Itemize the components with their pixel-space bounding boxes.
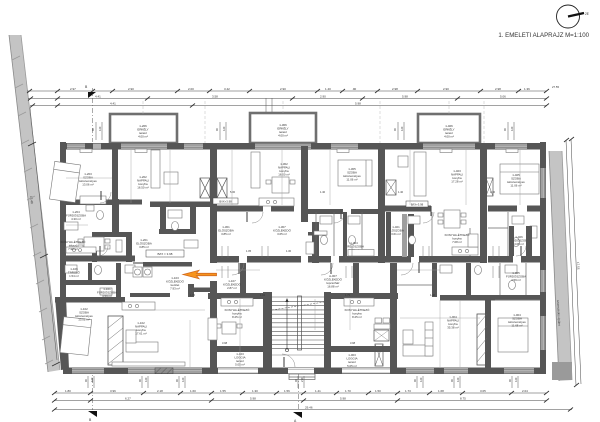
- svg-text:1.80: 1.80: [65, 389, 71, 393]
- svg-text:7.90 m²: 7.90 m²: [68, 247, 78, 251]
- svg-text:5.06: 5.06: [500, 95, 506, 99]
- svg-text:5.98: 5.98: [355, 102, 361, 106]
- svg-text:7.93 m²: 7.93 m²: [170, 287, 180, 291]
- svg-text:1.56: 1.56: [284, 389, 290, 393]
- svg-text:3.85 m²: 3.85 m²: [139, 245, 149, 249]
- svg-text:5.98: 5.98: [340, 397, 346, 401]
- svg-text:2.98: 2.98: [392, 87, 398, 91]
- svg-text:120: 120: [456, 377, 460, 382]
- svg-text:1.30: 1.30: [252, 389, 258, 393]
- svg-text:1.55: 1.55: [220, 389, 226, 393]
- svg-text:2.90: 2.90: [320, 95, 326, 99]
- svg-text:4.59 m²: 4.59 m²: [511, 278, 521, 282]
- svg-text:2.04: 2.04: [522, 389, 528, 393]
- svg-text:3.42: 3.42: [224, 87, 230, 91]
- svg-text:1.36: 1.36: [524, 87, 530, 91]
- svg-text:3.98: 3.98: [222, 341, 228, 345]
- svg-text:16.88 m²: 16.88 m²: [327, 285, 338, 289]
- svg-text:4.00 m²: 4.00 m²: [278, 134, 288, 138]
- svg-text:4.41: 4.41: [110, 102, 116, 106]
- svg-text:2.87 m²: 2.87 m²: [227, 286, 237, 290]
- svg-text:35.38 m²: 35.38 m²: [447, 326, 458, 330]
- svg-text:3.61 m²: 3.61 m²: [391, 232, 401, 236]
- svg-text:1.30: 1.30: [286, 249, 292, 253]
- svg-text:29.46: 29.46: [305, 406, 313, 410]
- svg-text:120: 120: [90, 377, 94, 382]
- svg-text:16.50 m²: 16.50 m²: [137, 186, 148, 190]
- svg-text:B/IX+3.98: B/IX+3.98: [219, 200, 232, 204]
- svg-text:1.75: 1.75: [345, 293, 351, 297]
- svg-text:4.00 m²: 4.00 m²: [444, 135, 454, 139]
- svg-text:1.50: 1.50: [375, 389, 381, 393]
- svg-text:1.41: 1.41: [315, 389, 321, 393]
- svg-text:1.40: 1.40: [398, 190, 404, 194]
- svg-text:120: 120: [222, 126, 226, 131]
- svg-text:8.25 m²: 8.25 m²: [232, 315, 242, 319]
- svg-text:1. EMELETI ALAPRAJZ M=1:100: 1. EMELETI ALAPRAJZ M=1:100: [498, 32, 589, 39]
- svg-text:8.25 m²: 8.25 m²: [352, 315, 362, 319]
- svg-text:5.98: 5.98: [402, 95, 408, 99]
- svg-text:11.06 m²: 11.06 m²: [346, 178, 357, 182]
- svg-text:1.05: 1.05: [246, 249, 252, 253]
- svg-text:4.41: 4.41: [95, 95, 101, 99]
- svg-text:210: 210: [300, 377, 304, 382]
- svg-text:27.55: 27.55: [552, 85, 559, 89]
- svg-text:8.75: 8.75: [460, 397, 466, 401]
- svg-text:1.40: 1.40: [430, 293, 436, 297]
- svg-text:11.68 m²: 11.68 m²: [511, 324, 522, 328]
- svg-text:1.40: 1.40: [325, 87, 331, 91]
- svg-text:6.27: 6.27: [125, 397, 131, 401]
- svg-text:2.90: 2.90: [128, 87, 134, 91]
- svg-text:1.02: 1.02: [260, 293, 266, 297]
- svg-text:1.40: 1.40: [320, 190, 326, 194]
- svg-text:120: 120: [181, 377, 185, 382]
- svg-text:3.98: 3.98: [350, 341, 356, 345]
- svg-text:7.08 m²: 7.08 m²: [452, 240, 462, 244]
- svg-text:13.01 m²: 13.01 m²: [78, 318, 89, 322]
- svg-text:2.18: 2.18: [157, 389, 163, 393]
- svg-text:2.98: 2.98: [495, 87, 501, 91]
- svg-text:1.68: 1.68: [438, 389, 444, 393]
- svg-text:2.90: 2.90: [443, 87, 449, 91]
- svg-text:1.54 m²: 1.54 m²: [69, 274, 79, 278]
- svg-text:1.70: 1.70: [190, 293, 196, 297]
- svg-text:2.00: 2.00: [188, 87, 194, 91]
- svg-text:2.90: 2.90: [280, 87, 286, 91]
- svg-text:120: 120: [400, 126, 404, 131]
- svg-text:4.00 m²: 4.00 m²: [138, 135, 148, 139]
- svg-text:13.06 m²: 13.06 m²: [82, 183, 93, 187]
- svg-text:2E: 2E: [585, 12, 589, 16]
- svg-text:17.61 m²: 17.61 m²: [135, 332, 146, 336]
- svg-text:B/IX+3.98: B/IX+3.98: [411, 203, 424, 207]
- svg-text:17.55: 17.55: [576, 262, 580, 270]
- svg-text:3.65 m²: 3.65 m²: [277, 232, 287, 236]
- svg-text:1.70: 1.70: [345, 389, 351, 393]
- svg-text:5.00: 5.00: [230, 190, 236, 194]
- svg-text:1.40: 1.40: [490, 190, 496, 194]
- svg-text:5.98: 5.98: [250, 397, 256, 401]
- svg-text:120: 120: [419, 377, 423, 382]
- svg-text:3.05: 3.05: [480, 389, 486, 393]
- svg-text:2.97: 2.97: [70, 87, 76, 91]
- svg-text:17.28 m²: 17.28 m²: [451, 180, 462, 184]
- svg-text:120: 120: [144, 377, 148, 382]
- svg-text:4.59 m²: 4.59 m²: [102, 294, 112, 298]
- svg-text:3.85 m²: 3.85 m²: [221, 232, 231, 236]
- svg-text:4.30 m²: 4.30 m²: [71, 217, 81, 221]
- svg-text:3.96: 3.96: [110, 389, 116, 393]
- svg-text:120: 120: [514, 377, 518, 382]
- svg-text:120: 120: [98, 126, 102, 131]
- svg-text:.90: .90: [352, 87, 357, 91]
- svg-text:4.05 m²: 4.05 m²: [514, 242, 524, 246]
- svg-text:3.58: 3.58: [212, 95, 218, 99]
- svg-text:16.00 m²: 16.00 m²: [278, 173, 289, 177]
- svg-text:5.05 m²: 5.05 m²: [347, 364, 357, 368]
- svg-text:1.60: 1.60: [190, 389, 196, 393]
- svg-text:B/IX = 3.98: B/IX = 3.98: [158, 252, 173, 256]
- svg-text:120: 120: [510, 126, 514, 131]
- svg-text:1.73: 1.73: [405, 389, 411, 393]
